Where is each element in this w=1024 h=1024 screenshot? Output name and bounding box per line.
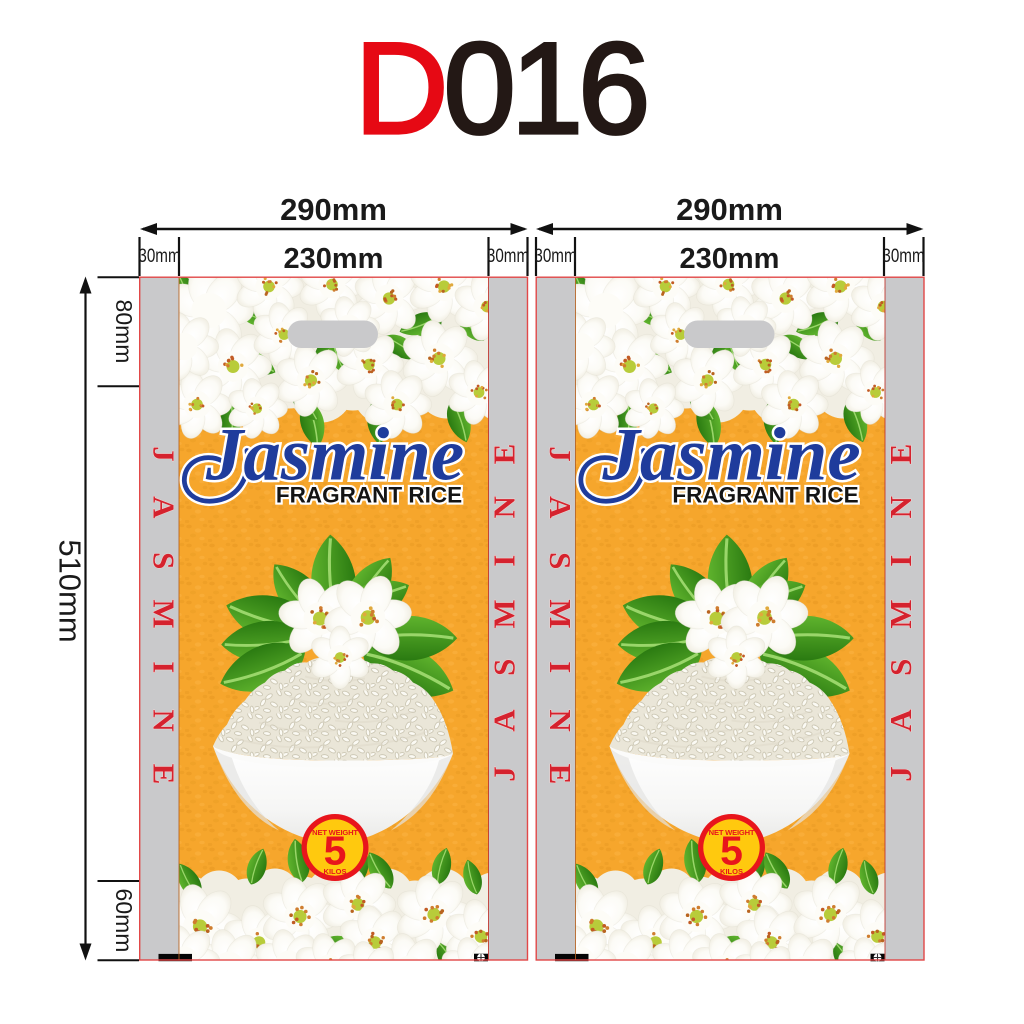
svg-text:30mm: 30mm [534, 244, 576, 266]
svg-text:30mm: 30mm [138, 244, 180, 266]
svg-text:230mm: 230mm [284, 243, 384, 275]
svg-text:290mm: 290mm [676, 192, 783, 227]
svg-text:230mm: 230mm [680, 243, 780, 275]
svg-text:510mm: 510mm [53, 539, 88, 642]
svg-text:30mm: 30mm [882, 244, 924, 266]
svg-text:80mm: 80mm [111, 300, 137, 364]
svg-text:30mm: 30mm [487, 244, 529, 266]
svg-text:D016: D016 [355, 15, 646, 161]
svg-text:290mm: 290mm [280, 192, 387, 227]
svg-text:60mm: 60mm [111, 889, 137, 953]
